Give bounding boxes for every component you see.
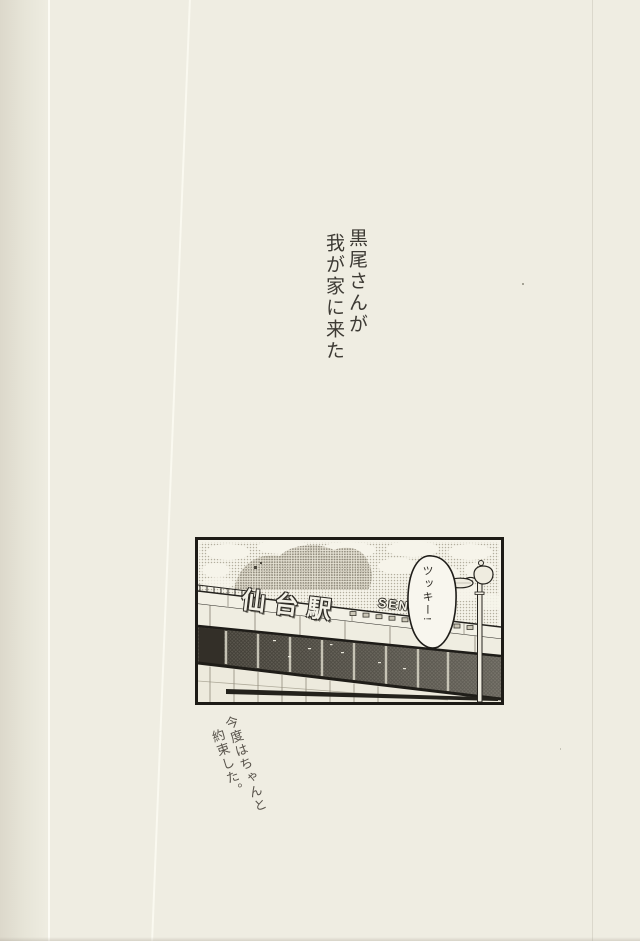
ink-speck	[560, 748, 561, 750]
caption-line-2: 我が家に来た	[322, 228, 345, 378]
bottom-page-shadow	[0, 937, 640, 941]
page-gutter-shadow	[0, 0, 50, 941]
ink-speck	[522, 283, 524, 285]
page-gutter-highlight	[48, 0, 50, 941]
scanned-page: 黒尾さんが 我が家に来た	[0, 0, 640, 941]
manga-panel: 仙台駅 SEND ツッキー!	[195, 537, 504, 705]
speech-bubble-text: ツッキー!	[419, 565, 435, 649]
sky-speck	[260, 562, 262, 564]
paper-crease-line	[151, 0, 192, 941]
caption-line-1: 黒尾さんが	[345, 228, 368, 378]
handwritten-note: 今度はちゃんと 約束した。	[204, 714, 269, 821]
right-scan-line	[592, 0, 593, 941]
caption-vertical-text: 黒尾さんが 我が家に来た	[322, 228, 368, 378]
sky-speck	[254, 566, 257, 569]
